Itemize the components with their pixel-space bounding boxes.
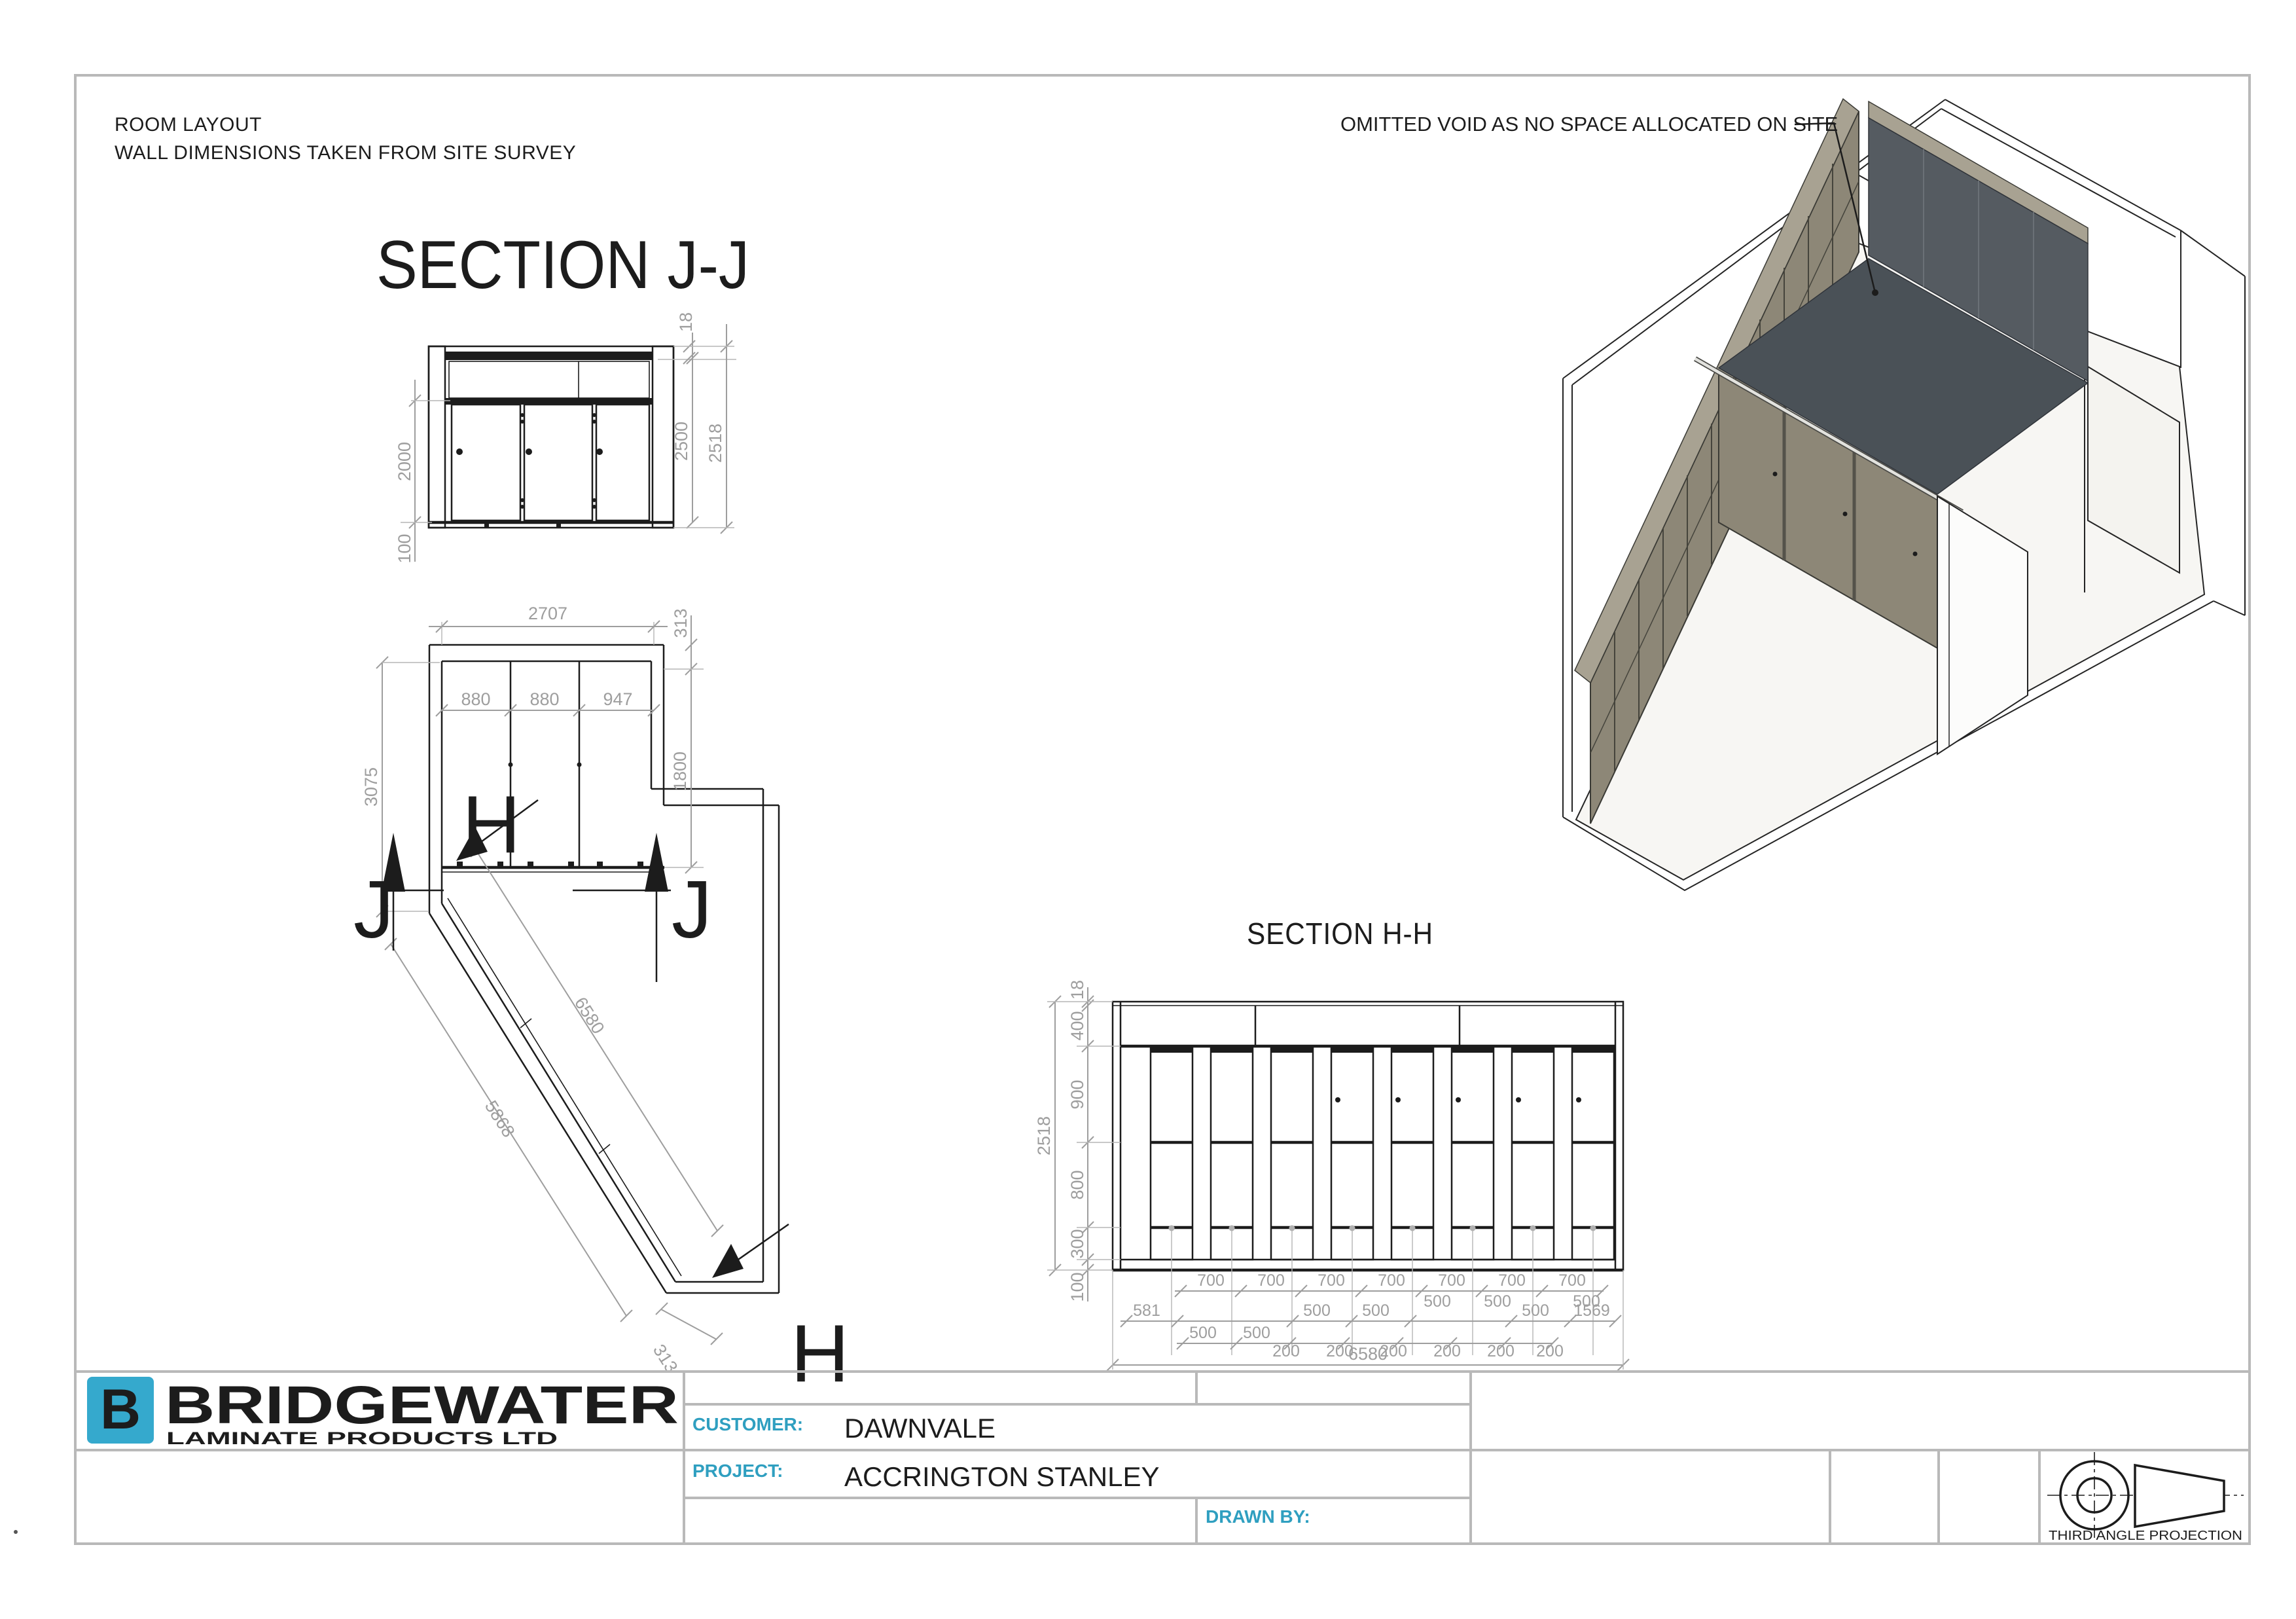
jj-doors bbox=[452, 405, 649, 528]
hh-700-7: 700 bbox=[1558, 1271, 1586, 1290]
iso-annotation-dot bbox=[1872, 289, 1878, 296]
jj-dim-100: 100 bbox=[395, 534, 414, 563]
brand-name: BRIDGEWATER bbox=[165, 1375, 679, 1435]
plan-dim-880a: 880 bbox=[461, 689, 490, 709]
plan-dim-880b: 880 bbox=[529, 689, 559, 709]
hh-bottom-dims: 700 700 700 700 700 700 700 500 500 500 … bbox=[1107, 1270, 1629, 1371]
section-jj-title: SECTION J-J bbox=[376, 227, 749, 303]
section-hh: SECTION H-H bbox=[1034, 917, 1629, 1371]
brand-logo: B BRIDGEWATER LAMINATE PRODUCTS LTD bbox=[87, 1375, 679, 1448]
plan-walls bbox=[429, 645, 779, 1293]
hh-frame bbox=[1113, 1002, 1623, 1270]
plan-dimensions: 2707 313 880 880 947 3075 1800 6580 bbox=[361, 604, 723, 1376]
third-angle-projection-icon: THIRD ANGLE PROJECTION bbox=[2047, 1452, 2244, 1543]
hh-left-dims: 18 400 900 800 300 100 2518 bbox=[1034, 980, 1121, 1302]
jj-dim-2518: 2518 bbox=[706, 424, 725, 463]
jj-transom-panel bbox=[449, 361, 649, 398]
plan-dim-3075: 3075 bbox=[361, 767, 381, 807]
section-hh-title: SECTION H-H bbox=[1247, 917, 1433, 951]
drawing-sheet: ROOM LAYOUT WALL DIMENSIONS TAKEN FROM S… bbox=[0, 0, 2296, 1619]
hh-b500-3: 500 bbox=[1522, 1301, 1549, 1320]
section-jj: SECTION J-J 2000 bbox=[376, 227, 749, 564]
hh-700-3: 700 bbox=[1318, 1271, 1345, 1290]
hh-dim-400: 400 bbox=[1067, 1011, 1087, 1040]
hh-dim-18: 18 bbox=[1067, 980, 1087, 1000]
hh-581: 581 bbox=[1133, 1301, 1160, 1320]
hh-700-1: 700 bbox=[1197, 1271, 1225, 1290]
plan-dim-1800: 1800 bbox=[670, 752, 690, 791]
hh-200-6: 200 bbox=[1536, 1342, 1564, 1360]
hh-dim-300: 300 bbox=[1067, 1229, 1087, 1258]
customer-label: CUSTOMER: bbox=[692, 1414, 803, 1434]
hh-200-4: 200 bbox=[1433, 1342, 1461, 1360]
notes: ROOM LAYOUT WALL DIMENSIONS TAKEN FROM S… bbox=[115, 114, 576, 164]
iso-view: OMITTED VOID AS NO SPACE ALLOCATED ON SI… bbox=[1340, 99, 2245, 890]
plan-dim-313-top: 313 bbox=[671, 608, 691, 638]
hh-700-6: 700 bbox=[1498, 1271, 1526, 1290]
hh-dim-100: 100 bbox=[1067, 1272, 1087, 1301]
hh-200-5: 200 bbox=[1487, 1342, 1515, 1360]
hh-700-2: 700 bbox=[1257, 1271, 1285, 1290]
hh-700-4: 700 bbox=[1378, 1271, 1405, 1290]
note-wall-dimensions: WALL DIMENSIONS TAKEN FROM SITE SURVEY bbox=[115, 142, 576, 164]
iso-annotation-text: OMITTED VOID AS NO SPACE ALLOCATED ON SI… bbox=[1340, 113, 1838, 136]
hh-dim-6580: 6580 bbox=[1348, 1344, 1388, 1364]
drawn-by-label: DRAWN BY: bbox=[1206, 1506, 1310, 1527]
plan-dim-2707: 2707 bbox=[528, 604, 567, 623]
hh-500i-1: 500 bbox=[1424, 1292, 1451, 1311]
hh-b500-2: 500 bbox=[1362, 1301, 1390, 1320]
jj-dim-2000: 2000 bbox=[395, 442, 414, 481]
hh-dim-900: 900 bbox=[1067, 1080, 1087, 1109]
brand-subtitle: LAMINATE PRODUCTS LTD bbox=[166, 1428, 558, 1448]
title-block: B BRIDGEWATER LAMINATE PRODUCTS LTD CUST… bbox=[75, 1372, 2250, 1544]
plan-view: 2707 313 880 880 947 3075 1800 6580 bbox=[353, 604, 850, 1399]
hh-c500-2: 500 bbox=[1243, 1324, 1270, 1342]
stray-mark bbox=[14, 1530, 18, 1534]
plan-section-markers: J J H H bbox=[353, 780, 850, 1399]
hh-b500-1: 500 bbox=[1303, 1301, 1331, 1320]
plan-dim-6580: 6580 bbox=[571, 994, 609, 1038]
hh-700-5: 700 bbox=[1438, 1271, 1465, 1290]
note-room-layout: ROOM LAYOUT bbox=[115, 114, 262, 136]
jj-left-wall bbox=[429, 346, 445, 528]
jj-frame bbox=[429, 346, 673, 528]
jj-right-wall bbox=[653, 346, 673, 528]
hh-200-1: 200 bbox=[1272, 1342, 1300, 1360]
plan-dim-947: 947 bbox=[603, 689, 632, 709]
jj-headrail bbox=[445, 352, 653, 360]
hh-500i-2: 500 bbox=[1484, 1292, 1511, 1311]
plan-marker-h-bottom: H bbox=[791, 1309, 850, 1399]
project-value: ACCRINGTON STANLEY bbox=[844, 1461, 1160, 1492]
project-label: PROJECT: bbox=[692, 1461, 783, 1481]
jj-dim-18: 18 bbox=[676, 312, 696, 332]
plan-dim-5868: 5868 bbox=[481, 1097, 519, 1141]
plan-marker-j-left: J bbox=[353, 865, 394, 955]
jj-dimensions: 2000 100 18 2500 2518 bbox=[395, 312, 736, 564]
hh-1569: 1569 bbox=[1573, 1301, 1610, 1320]
customer-value: DAWNVALE bbox=[844, 1413, 996, 1444]
jj-dim-2500: 2500 bbox=[672, 422, 691, 461]
brand-letter: B bbox=[100, 1378, 141, 1441]
jj-transom-rail bbox=[445, 398, 653, 405]
hh-dim-800: 800 bbox=[1067, 1170, 1087, 1199]
hh-c500-1: 500 bbox=[1189, 1324, 1217, 1342]
plan-marker-j-right: J bbox=[672, 865, 712, 955]
cad-canvas: ROOM LAYOUT WALL DIMENSIONS TAKEN FROM S… bbox=[0, 0, 2296, 1619]
third-angle-projection-label: THIRD ANGLE PROJECTION bbox=[2049, 1529, 2242, 1543]
hh-dim-2518: 2518 bbox=[1034, 1116, 1054, 1155]
